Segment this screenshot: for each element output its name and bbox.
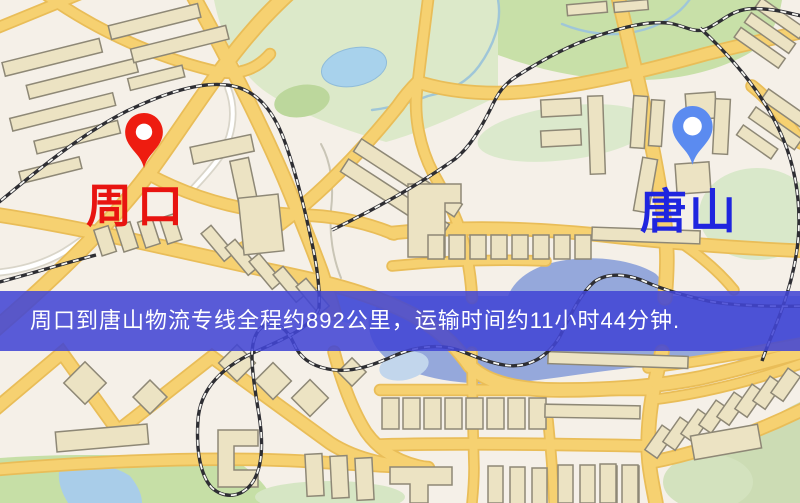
route-info-banner: 周口到唐山物流专线全程约892公里，运输时间约11小时44分钟. [0, 291, 800, 351]
origin-pin[interactable] [122, 112, 166, 170]
destination-label: 唐山 [640, 173, 738, 242]
pin-body [672, 106, 712, 165]
pin-body [125, 113, 163, 168]
location-pin-icon [122, 112, 166, 170]
location-pin-icon [669, 105, 716, 167]
destination-pin[interactable] [669, 105, 716, 167]
map-artwork[interactable] [0, 0, 800, 503]
origin-label: 周口 [86, 170, 188, 236]
map-viewport[interactable]: 周口 唐山 周口到唐山物流专线全程约892公里，运输时间约11小时44分钟. [0, 0, 800, 503]
pin-hole [136, 124, 152, 140]
pin-hole [683, 117, 702, 136]
route-info-text: 周口到唐山物流专线全程约892公里，运输时间约11小时44分钟. [0, 291, 680, 351]
